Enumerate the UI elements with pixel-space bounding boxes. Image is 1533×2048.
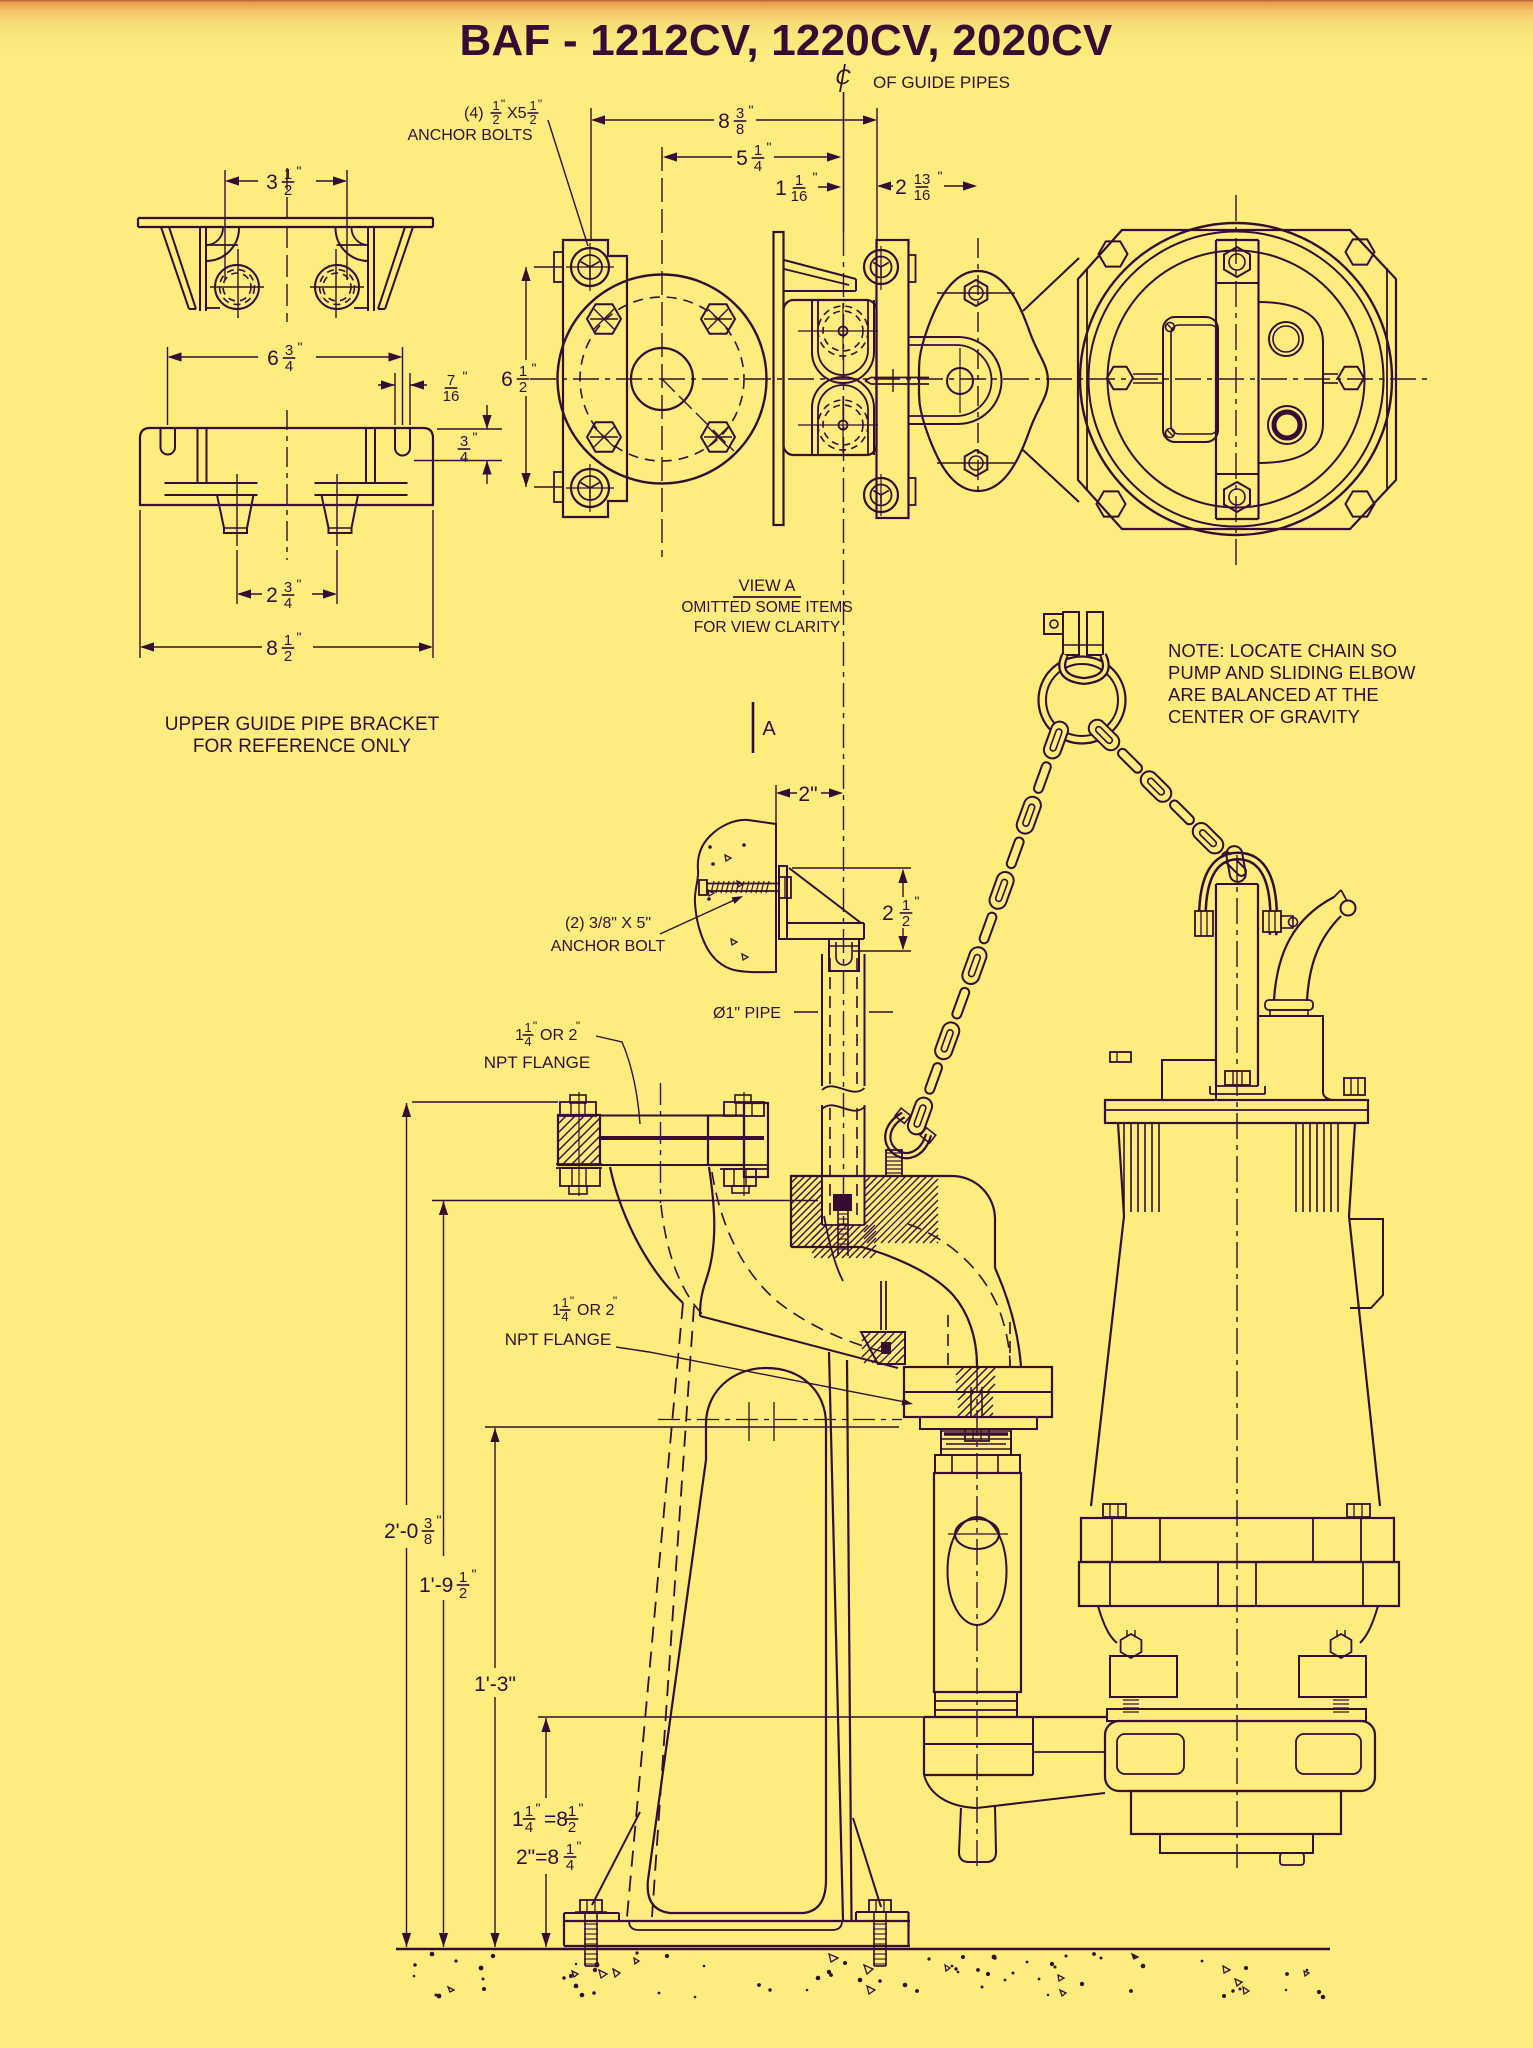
svg-text:": " xyxy=(536,1800,541,1816)
svg-text:1: 1 xyxy=(519,363,527,380)
svg-text:1: 1 xyxy=(795,172,803,189)
svg-text:": " xyxy=(579,1800,584,1816)
svg-text:6: 6 xyxy=(501,368,513,391)
svg-text:2: 2 xyxy=(492,112,499,127)
svg-text:ANCHOR BOLTS: ANCHOR BOLTS xyxy=(407,127,532,144)
svg-text:3: 3 xyxy=(284,579,292,596)
svg-text:2"=8: 2"=8 xyxy=(516,1846,559,1869)
svg-text:": " xyxy=(749,102,754,118)
svg-text:4: 4 xyxy=(566,1857,574,1874)
svg-text:": " xyxy=(577,1838,582,1854)
svg-text:FOR VIEW CLARITY: FOR VIEW CLARITY xyxy=(694,619,840,636)
svg-text:4: 4 xyxy=(754,158,762,175)
svg-text:OR 2: OR 2 xyxy=(540,1027,577,1044)
svg-text:3: 3 xyxy=(266,171,278,194)
svg-text:A: A xyxy=(762,718,776,740)
svg-text:1: 1 xyxy=(525,1803,533,1820)
svg-text:3: 3 xyxy=(285,342,293,359)
svg-text:4: 4 xyxy=(525,1819,533,1836)
svg-text:1: 1 xyxy=(568,1803,576,1820)
svg-text:": " xyxy=(501,97,505,111)
svg-text:8: 8 xyxy=(266,637,278,660)
svg-text:(2) 3/8" X 5": (2) 3/8" X 5" xyxy=(565,915,651,932)
svg-text:": " xyxy=(613,1294,617,1308)
svg-text:": " xyxy=(532,360,537,376)
svg-text:3: 3 xyxy=(424,1515,432,1532)
svg-text:3: 3 xyxy=(736,105,744,122)
svg-text:ARE BALANCED AT THE: ARE BALANCED AT THE xyxy=(1168,684,1379,705)
svg-text:2: 2 xyxy=(266,584,278,607)
svg-text:3: 3 xyxy=(460,433,468,450)
svg-text:BAF - 1212CV, 1220CV, 2020CV: BAF - 1212CV, 1220CV, 2020CV xyxy=(460,16,1113,65)
svg-text:2: 2 xyxy=(882,902,894,925)
svg-text:2: 2 xyxy=(902,913,910,930)
svg-text:": " xyxy=(297,629,302,645)
svg-text:2'-0: 2'-0 xyxy=(384,1520,418,1543)
svg-text:UPPER GUIDE PIPE BRACKET: UPPER GUIDE PIPE BRACKET xyxy=(165,714,440,735)
svg-text:": " xyxy=(297,163,302,179)
svg-text:1: 1 xyxy=(459,1569,467,1586)
svg-text:": " xyxy=(297,576,302,592)
svg-text:8: 8 xyxy=(718,110,730,133)
svg-text:1: 1 xyxy=(902,897,910,914)
svg-text:6: 6 xyxy=(267,347,279,370)
svg-text:16: 16 xyxy=(791,188,808,205)
svg-text:": " xyxy=(298,339,303,355)
svg-text:VIEW A: VIEW A xyxy=(739,577,796,595)
svg-text:13: 13 xyxy=(914,171,931,188)
svg-text:": " xyxy=(813,169,818,185)
svg-text:1: 1 xyxy=(561,1295,568,1310)
svg-text:": " xyxy=(938,168,943,184)
svg-text:NPT FLANGE: NPT FLANGE xyxy=(505,1330,611,1349)
svg-text:4: 4 xyxy=(285,358,293,375)
svg-text:X5: X5 xyxy=(507,105,527,122)
svg-text:8: 8 xyxy=(736,121,744,138)
svg-text:1: 1 xyxy=(512,1808,524,1831)
svg-text:16: 16 xyxy=(914,187,931,204)
svg-text:NOTE: LOCATE CHAIN SO: NOTE: LOCATE CHAIN SO xyxy=(1168,640,1397,661)
svg-text:2: 2 xyxy=(284,648,292,665)
svg-text:4: 4 xyxy=(524,1034,531,1049)
svg-text:2: 2 xyxy=(529,112,536,127)
svg-text:FOR REFERENCE ONLY: FOR REFERENCE ONLY xyxy=(193,736,412,757)
svg-text:5: 5 xyxy=(736,147,748,170)
svg-text:": " xyxy=(533,1019,537,1033)
svg-text:1: 1 xyxy=(566,1841,574,1858)
svg-text:": " xyxy=(473,429,478,445)
svg-text:16: 16 xyxy=(443,388,460,405)
svg-text:1'-3": 1'-3" xyxy=(474,1673,516,1696)
svg-text:2": 2" xyxy=(798,783,817,806)
svg-text:1: 1 xyxy=(284,166,292,183)
svg-text:1: 1 xyxy=(284,632,292,649)
svg-text:1'-9: 1'-9 xyxy=(419,1574,453,1597)
svg-text:": " xyxy=(472,1566,477,1582)
svg-text:NPT FLANGE: NPT FLANGE xyxy=(484,1053,590,1072)
svg-text:=8: =8 xyxy=(544,1808,568,1831)
svg-text:2: 2 xyxy=(284,182,292,199)
svg-text:1: 1 xyxy=(529,98,536,113)
svg-text:OF GUIDE PIPES: OF GUIDE PIPES xyxy=(873,73,1010,92)
svg-text:Ø1" PIPE: Ø1" PIPE xyxy=(713,1005,781,1022)
svg-text:1: 1 xyxy=(524,1020,531,1035)
svg-text:2: 2 xyxy=(519,379,527,396)
svg-text:8: 8 xyxy=(424,1531,432,1548)
svg-text:": " xyxy=(437,1512,442,1528)
svg-text:": " xyxy=(570,1294,574,1308)
svg-text:CENTER OF GRAVITY: CENTER OF GRAVITY xyxy=(1168,706,1360,727)
svg-text:4: 4 xyxy=(561,1309,568,1324)
svg-text:": " xyxy=(915,893,920,909)
svg-text:1: 1 xyxy=(492,98,499,113)
svg-text:2: 2 xyxy=(895,176,907,199)
svg-text:1: 1 xyxy=(775,177,787,200)
svg-text:ANCHOR BOLT: ANCHOR BOLT xyxy=(551,938,666,955)
svg-text:OR 2: OR 2 xyxy=(577,1302,614,1319)
svg-text:7: 7 xyxy=(447,372,455,389)
svg-text:4: 4 xyxy=(460,449,468,466)
svg-text:2: 2 xyxy=(568,1819,576,1836)
svg-text:": " xyxy=(767,139,772,155)
svg-text:1: 1 xyxy=(754,142,762,159)
svg-text:OMITTED SOME ITEMS: OMITTED SOME ITEMS xyxy=(681,599,852,616)
svg-text:4: 4 xyxy=(284,595,292,612)
svg-text:": " xyxy=(576,1019,580,1033)
svg-text:": " xyxy=(538,97,542,111)
svg-text:(4): (4) xyxy=(464,105,484,122)
svg-text:PUMP AND SLIDING ELBOW: PUMP AND SLIDING ELBOW xyxy=(1168,662,1416,683)
svg-text:2: 2 xyxy=(459,1585,467,1602)
svg-text:": " xyxy=(463,368,468,384)
